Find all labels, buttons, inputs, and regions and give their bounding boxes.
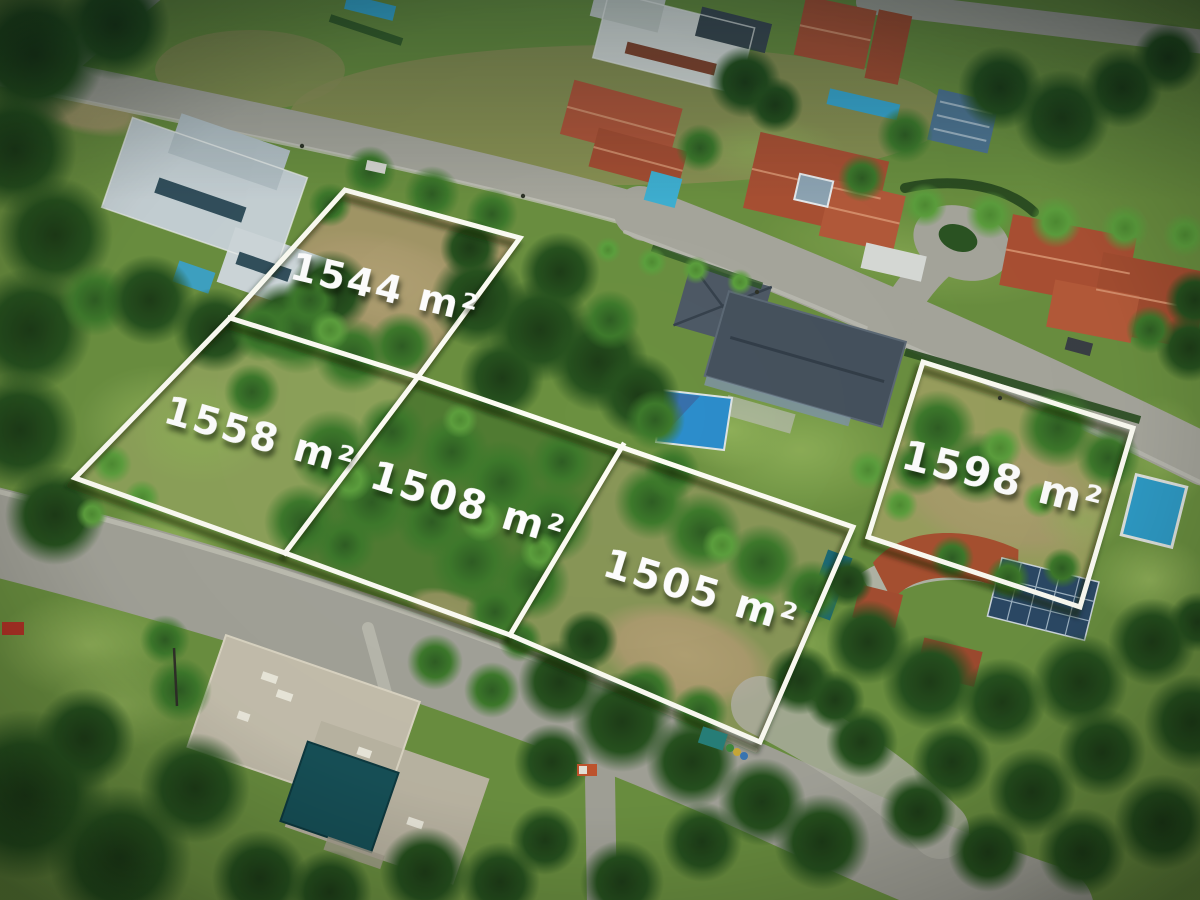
- aerial-photo-canvas: 1544 m² 1558 m² 1508 m² 1505 m² 1598 m²: [0, 0, 1200, 900]
- vignette-overlay: [0, 0, 1200, 900]
- aerial-photo: 1544 m² 1558 m² 1508 m² 1505 m² 1598 m²: [0, 0, 1200, 900]
